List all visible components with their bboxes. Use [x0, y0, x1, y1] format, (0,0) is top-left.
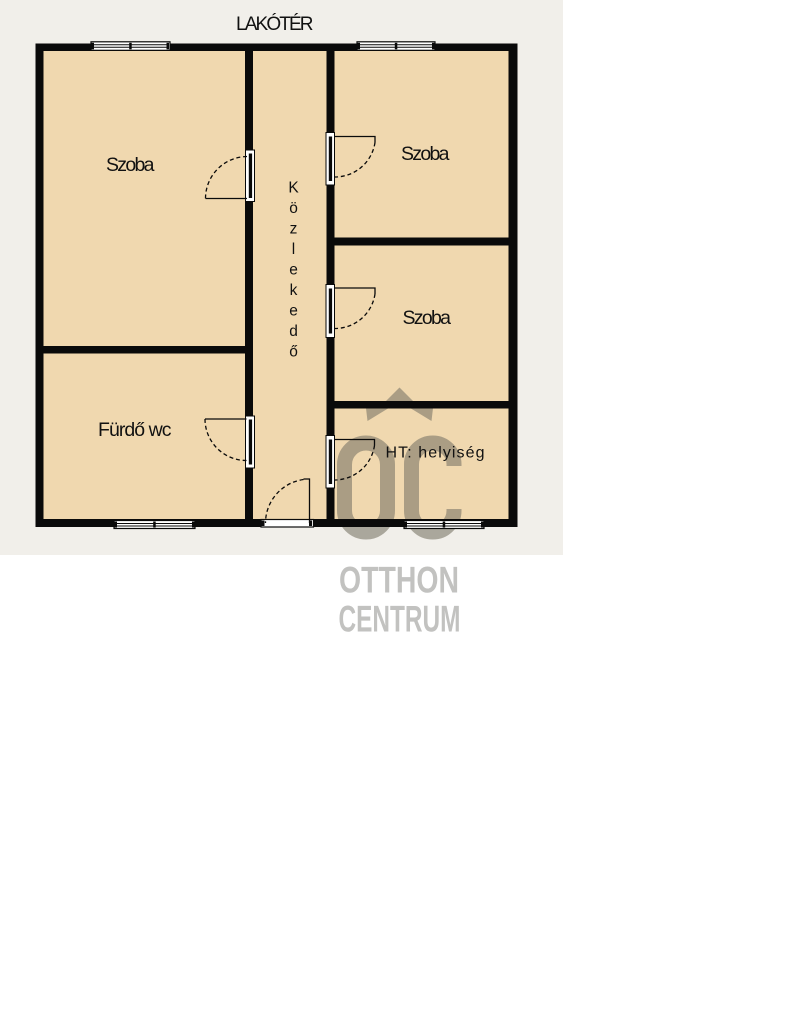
svg-text:z: z: [290, 221, 298, 238]
svg-text:K: K: [288, 180, 299, 197]
svg-text:Szoba: Szoba: [403, 307, 452, 329]
svg-text:Fürdő wc: Fürdő wc: [98, 419, 172, 441]
svg-text:LAKÓTÉR: LAKÓTÉR: [236, 13, 314, 35]
svg-text:HT: helyiség: HT: helyiség: [386, 445, 485, 462]
svg-text:l: l: [292, 241, 295, 258]
svg-text:e: e: [289, 303, 298, 320]
svg-text:d: d: [289, 323, 298, 340]
svg-text:Szoba: Szoba: [401, 143, 450, 165]
svg-text:e: e: [289, 262, 298, 279]
svg-text:ö: ö: [289, 200, 298, 217]
svg-text:ő: ő: [289, 344, 298, 361]
svg-text:k: k: [290, 282, 298, 299]
svg-text:CENTRUM: CENTRUM: [339, 599, 461, 640]
svg-text:OTTHON: OTTHON: [339, 560, 459, 601]
svg-text:Szoba: Szoba: [106, 154, 155, 176]
